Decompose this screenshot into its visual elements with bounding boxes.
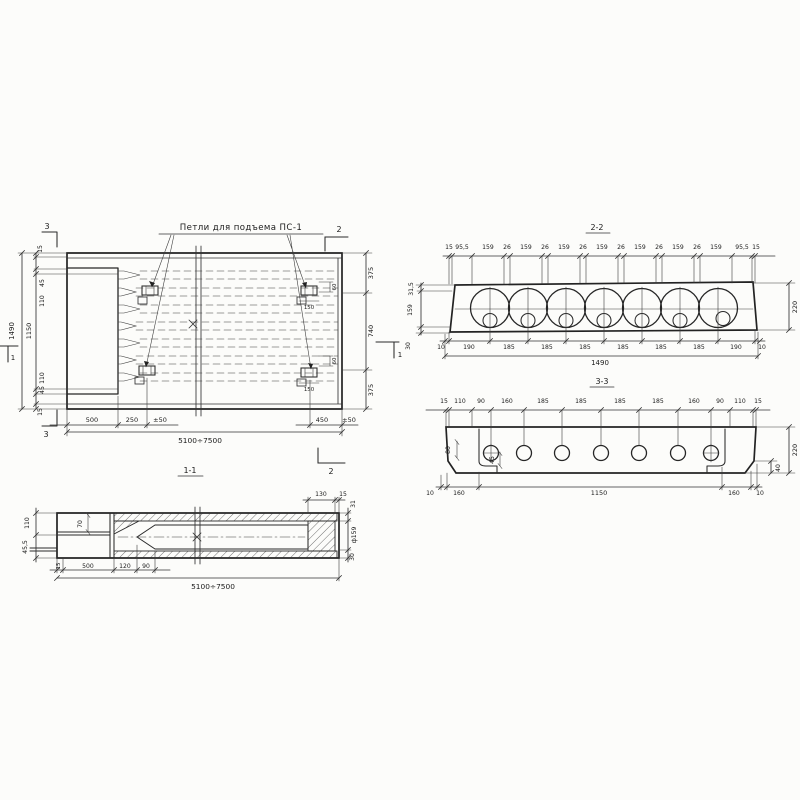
marker-line: [325, 237, 348, 251]
section-title: 3-3: [595, 377, 608, 386]
dim-label: 159: [596, 244, 608, 251]
dim-label: 26: [541, 244, 549, 251]
dim-label: 15: [339, 491, 347, 498]
dim-label: 110: [39, 295, 46, 307]
dim-label: 26: [693, 244, 701, 251]
dimension-lines: [50, 425, 358, 432]
dim-label: 45: [39, 386, 46, 394]
dim-label: 1490: [591, 359, 609, 367]
dim-label: 185: [652, 398, 664, 405]
dim-label: 130: [315, 491, 327, 498]
flange-taper-hatch: [114, 521, 139, 534]
dim-label: 185: [575, 398, 587, 405]
dim-label: 185: [579, 344, 591, 351]
dim-label: 159: [407, 304, 414, 316]
dim-label: 185: [617, 344, 629, 351]
core-pointed-ends: [118, 271, 140, 381]
loop-wire-lines: [143, 286, 313, 377]
extension-lines: [449, 256, 755, 284]
section-marker-2: 2: [336, 225, 341, 234]
dim-label: 60: [332, 283, 338, 290]
leader-lines: [146, 235, 311, 369]
dim-label: 220: [791, 301, 799, 313]
dim-label: 31: [350, 500, 357, 508]
dim-label: 159: [634, 244, 646, 251]
break-line: [196, 246, 201, 416]
dim-label: 31,5: [408, 282, 415, 296]
dim-label: 26: [503, 244, 511, 251]
marker-line: [318, 448, 345, 463]
section-marker-3: 3: [44, 222, 49, 231]
sec33-interior-dimensions: 80 45: [445, 440, 502, 469]
dim-label: 10: [758, 344, 766, 351]
dim-label: 250: [126, 416, 138, 424]
sec11-topright-dimensions: 130 15: [303, 491, 347, 513]
dim-label: 90: [477, 398, 485, 405]
dimension-lines: [50, 570, 339, 578]
extension-lines: [441, 464, 757, 490]
dim-label: 110: [39, 372, 46, 384]
dim-label: 10: [426, 490, 434, 497]
dim-label: 15: [752, 244, 760, 251]
sec22-left-dimensions: 31,5 159 30: [405, 282, 455, 350]
dim-label: 120: [119, 563, 131, 570]
top-flange-hatch: [114, 513, 337, 521]
sec22-right-dimension: 220: [753, 281, 799, 333]
dim-label: 185: [614, 398, 626, 405]
blueprint-sheet: 60 60 150 150 Петли для подъема ПС-1 3 3…: [0, 0, 800, 800]
dim-label: 45: [39, 279, 46, 287]
section-title: 2-2: [590, 223, 603, 232]
lifting-loop: [301, 368, 317, 377]
dim-label: 150: [304, 387, 315, 393]
dim-label: 1150: [591, 489, 608, 497]
dim-label: 500: [82, 563, 94, 570]
dim-label: 185: [503, 344, 515, 351]
lifting-loop-anchor: [297, 297, 306, 304]
dim-label: 1150: [25, 323, 33, 340]
dim-label: 95,5: [735, 244, 749, 251]
strand-circle: [555, 446, 570, 461]
dim-label: 159: [672, 244, 684, 251]
dim-label: 1490: [8, 322, 16, 340]
lifting-loop-anchor: [297, 379, 306, 386]
section-marker-2: 2: [328, 467, 333, 476]
dim-label: 15: [440, 398, 448, 405]
dim-label: 45: [489, 456, 496, 464]
dim-label: ф159: [351, 526, 358, 543]
section-title: 1-1: [183, 466, 196, 475]
dim-label: 500: [86, 416, 98, 424]
lifting-loop: [139, 366, 155, 375]
dim-label: 30: [405, 342, 412, 350]
section-3-3: 3-3 15 110 90 160 185 185 185 185: [426, 377, 799, 497]
end-recess-profile: [479, 429, 725, 472]
dim-label: 185: [693, 344, 705, 351]
dim-label: 159: [710, 244, 722, 251]
extension-lines: [18, 253, 118, 409]
bottom-flange-hatch: [114, 551, 337, 558]
marker-line: [376, 342, 399, 358]
lifting-loops: [135, 286, 317, 386]
dim-label: 15: [37, 245, 44, 253]
section-1-1: 1-1 70 110 45,5: [22, 466, 358, 591]
dim-label: 160: [501, 398, 513, 405]
sec11-left-dimensions: 110 45,5: [22, 508, 58, 562]
dim-label: 60: [332, 357, 338, 364]
dim-label: 10: [437, 344, 445, 351]
dim-label: 190: [463, 344, 475, 351]
dim-label: 5100÷7500: [191, 582, 235, 591]
dim-label: 160: [728, 490, 740, 497]
extension-lines: [67, 378, 342, 436]
dim-label: 15: [56, 563, 62, 570]
left-end-block: [30, 513, 114, 558]
dim-label: 45,5: [22, 540, 29, 554]
dim-line: [86, 513, 90, 535]
end-block-hatch: [308, 521, 335, 551]
sec22-top-dimensions: 15 95,5 159 26 159 26 159 26 159 26 159 …: [443, 244, 775, 284]
dim-label: 375: [367, 384, 375, 396]
dim-label: 185: [541, 344, 553, 351]
loops-label: Петли для подъема ПС-1: [180, 223, 302, 233]
strand-circle: [671, 446, 686, 461]
dim-label: 5100÷7500: [178, 436, 222, 445]
dim-label: 30: [349, 553, 356, 561]
plan-left-dimensions: 1490 15 45 110 1150 110 45 15: [8, 245, 118, 416]
extension-lines: [745, 427, 795, 473]
dim-label: 90: [142, 563, 150, 570]
ticks: [443, 339, 763, 359]
sec22-bottom-dimensions: 10 190 185 185 185 185 185 185 190 10 14…: [437, 330, 766, 367]
dim-label: 15: [37, 408, 44, 416]
dim-label: 190: [730, 344, 742, 351]
sec11-dim70: 70: [77, 513, 90, 535]
dim-label: 159: [558, 244, 570, 251]
marker-line: [42, 232, 57, 247]
dim-label: 110: [454, 398, 466, 405]
drawing-canvas: 60 60 150 150 Петли для подъема ПС-1 3 3…: [0, 0, 800, 800]
dim-label: 110: [734, 398, 746, 405]
dim-label: 159: [520, 244, 532, 251]
block-lines: [58, 513, 114, 558]
dim-label: 40: [775, 464, 782, 472]
dim-label: 185: [537, 398, 549, 405]
marker-line: [0, 346, 18, 362]
ticks: [55, 568, 342, 581]
sec33-right-dimensions: 220 40: [745, 425, 799, 476]
protruding-bars: [30, 548, 57, 551]
section-2-2: 2-2 15 95,5 159 26: [405, 223, 799, 367]
dim-label: ±50: [153, 416, 167, 424]
lifting-loop-anchor: [138, 297, 147, 304]
plan-right-dimensions: 375 740 375: [342, 251, 375, 412]
slab-inner-edge-lines: [67, 258, 342, 404]
section-marker-3: 3: [43, 430, 48, 439]
strand-holes: [483, 444, 719, 462]
dim-label: 185: [655, 344, 667, 351]
extension-lines: [308, 497, 339, 513]
dim-label: 70: [77, 520, 84, 528]
section-marker-1: 1: [11, 354, 15, 362]
lifting-loop: [301, 286, 317, 295]
ticks: [65, 423, 345, 435]
lifting-loop: [142, 286, 158, 295]
dim-label: 10: [756, 490, 764, 497]
core-centerlines: [490, 287, 718, 344]
dim-label: 160: [453, 490, 465, 497]
end-recess-outline: [67, 268, 118, 394]
dim-label: 150: [304, 305, 315, 311]
dim-label: 26: [579, 244, 587, 251]
dim-label: 15: [445, 244, 453, 251]
dim-label: 95,5: [455, 244, 469, 251]
dim-label: 375: [367, 267, 375, 279]
extension-lines: [445, 330, 758, 359]
marker-line: [42, 410, 57, 426]
dim-label: 15: [754, 398, 762, 405]
dim-label: 110: [24, 517, 31, 529]
dim-label: ±50: [342, 416, 356, 424]
sec11-right-dimensions: 31 ф159 30: [340, 500, 358, 562]
plan-view: 60 60 150 150 Петли для подъема ПС-1 3 3…: [0, 222, 402, 476]
strand-circle: [517, 446, 532, 461]
strand-circle: [632, 446, 647, 461]
core-dashed-lines: [136, 271, 338, 381]
dim-label: 26: [617, 244, 625, 251]
section-marker-1: 1: [398, 351, 402, 359]
dim-label: 160: [688, 398, 700, 405]
dim-label: 220: [791, 444, 799, 456]
strand-circle: [594, 446, 609, 461]
center-crosses: [483, 444, 719, 462]
dim-label: 159: [482, 244, 494, 251]
sec33-bottom-dimensions: 10 160 1150 160 10: [426, 464, 764, 497]
dim-label: 80: [445, 446, 452, 454]
extension-lines: [57, 545, 339, 581]
sec33-top-dimensions: 15 110 90 160 185 185 185 185 160 90 110…: [426, 398, 770, 445]
dim-label: 26: [655, 244, 663, 251]
dim-label: 90: [716, 398, 724, 405]
dim-label: 740: [367, 325, 375, 337]
dim-label: 450: [316, 416, 328, 424]
